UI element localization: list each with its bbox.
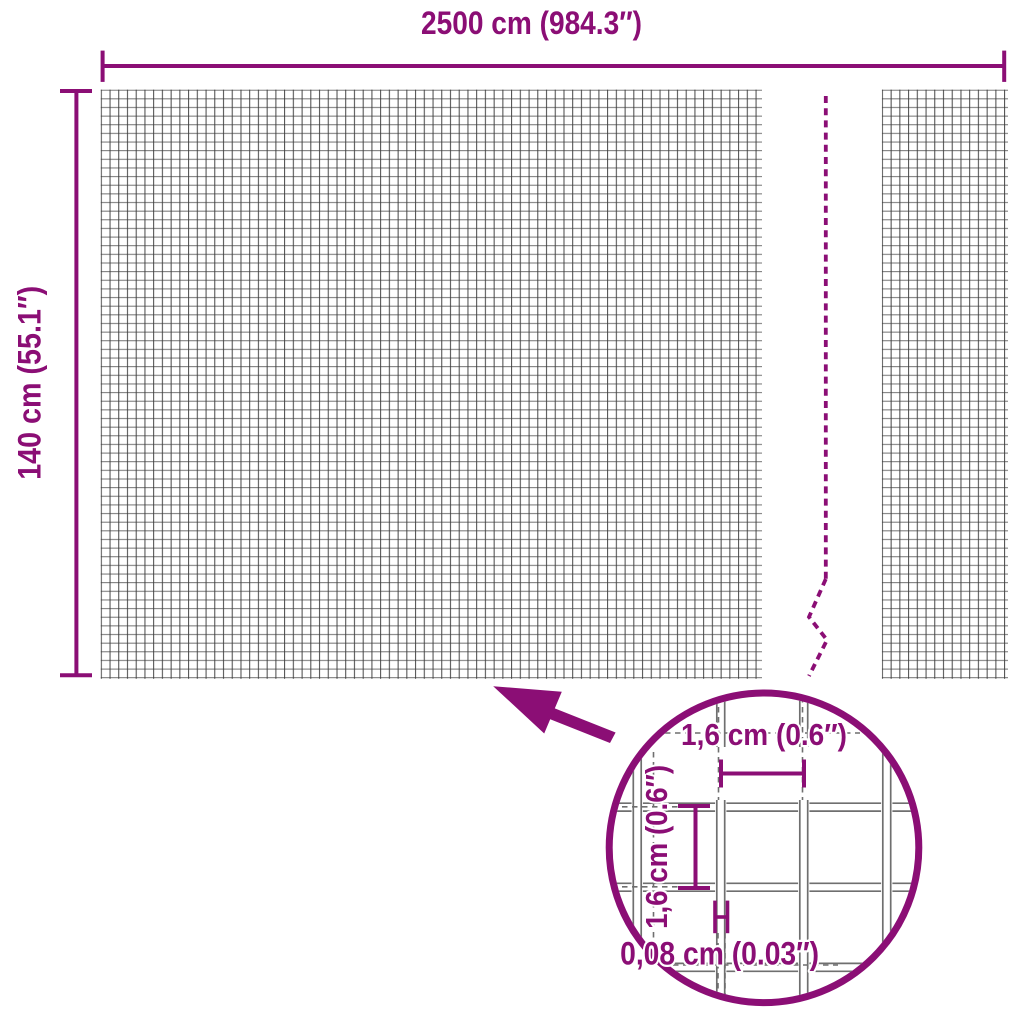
svg-text:1,6 cm (0.6″): 1,6 cm (0.6″) [639,765,674,929]
svg-text:140 cm (55.1″): 140 cm (55.1″) [12,286,48,480]
svg-text:1,6 cm (0.6″): 1,6 cm (0.6″) [681,717,847,752]
svg-text:2500 cm (984.3″): 2500 cm (984.3″) [421,5,642,41]
svg-text:0,08 cm (0.03″): 0,08 cm (0.03″) [620,936,819,972]
